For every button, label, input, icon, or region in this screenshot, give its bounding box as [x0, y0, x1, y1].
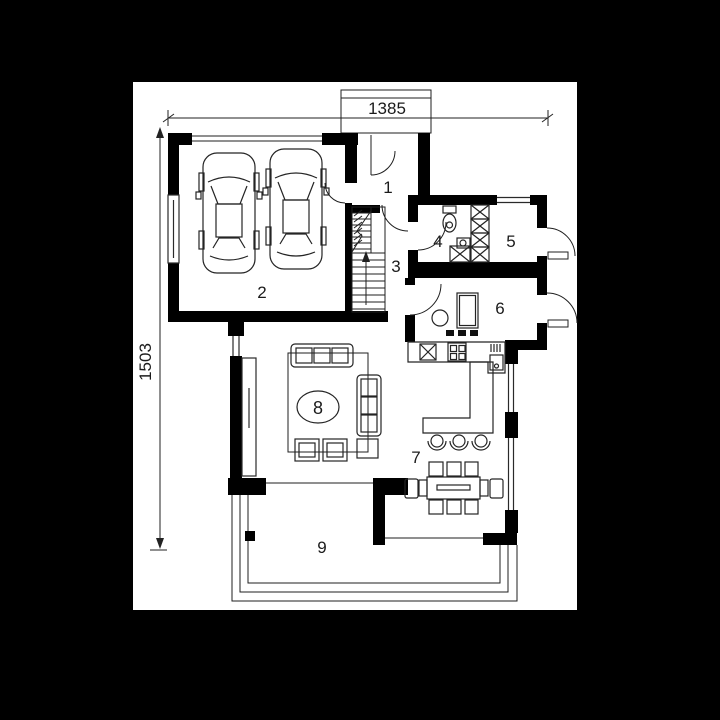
floor-plan-screenshot: 1385 1503 — [0, 0, 720, 720]
room-label-1: 1 — [383, 178, 392, 197]
room-label-8: 8 — [313, 398, 323, 418]
floor-plan-drawing: 1385 1503 — [0, 0, 720, 720]
dimension-left-label: 1503 — [136, 343, 155, 381]
chair-icon — [458, 330, 466, 336]
chair-icon — [446, 330, 454, 336]
dimension-top-label: 1385 — [368, 99, 406, 118]
room-label-3: 3 — [391, 257, 400, 276]
room-label-9: 9 — [317, 538, 326, 557]
room-label-5: 5 — [506, 232, 515, 251]
terrace-post — [245, 531, 255, 541]
room-label-4: 4 — [433, 232, 442, 251]
room-label-7: 7 — [411, 448, 420, 467]
chair-icon — [470, 330, 478, 336]
room-label-2: 2 — [257, 283, 266, 302]
window-icon — [497, 195, 530, 205]
room-label-6: 6 — [495, 299, 504, 318]
